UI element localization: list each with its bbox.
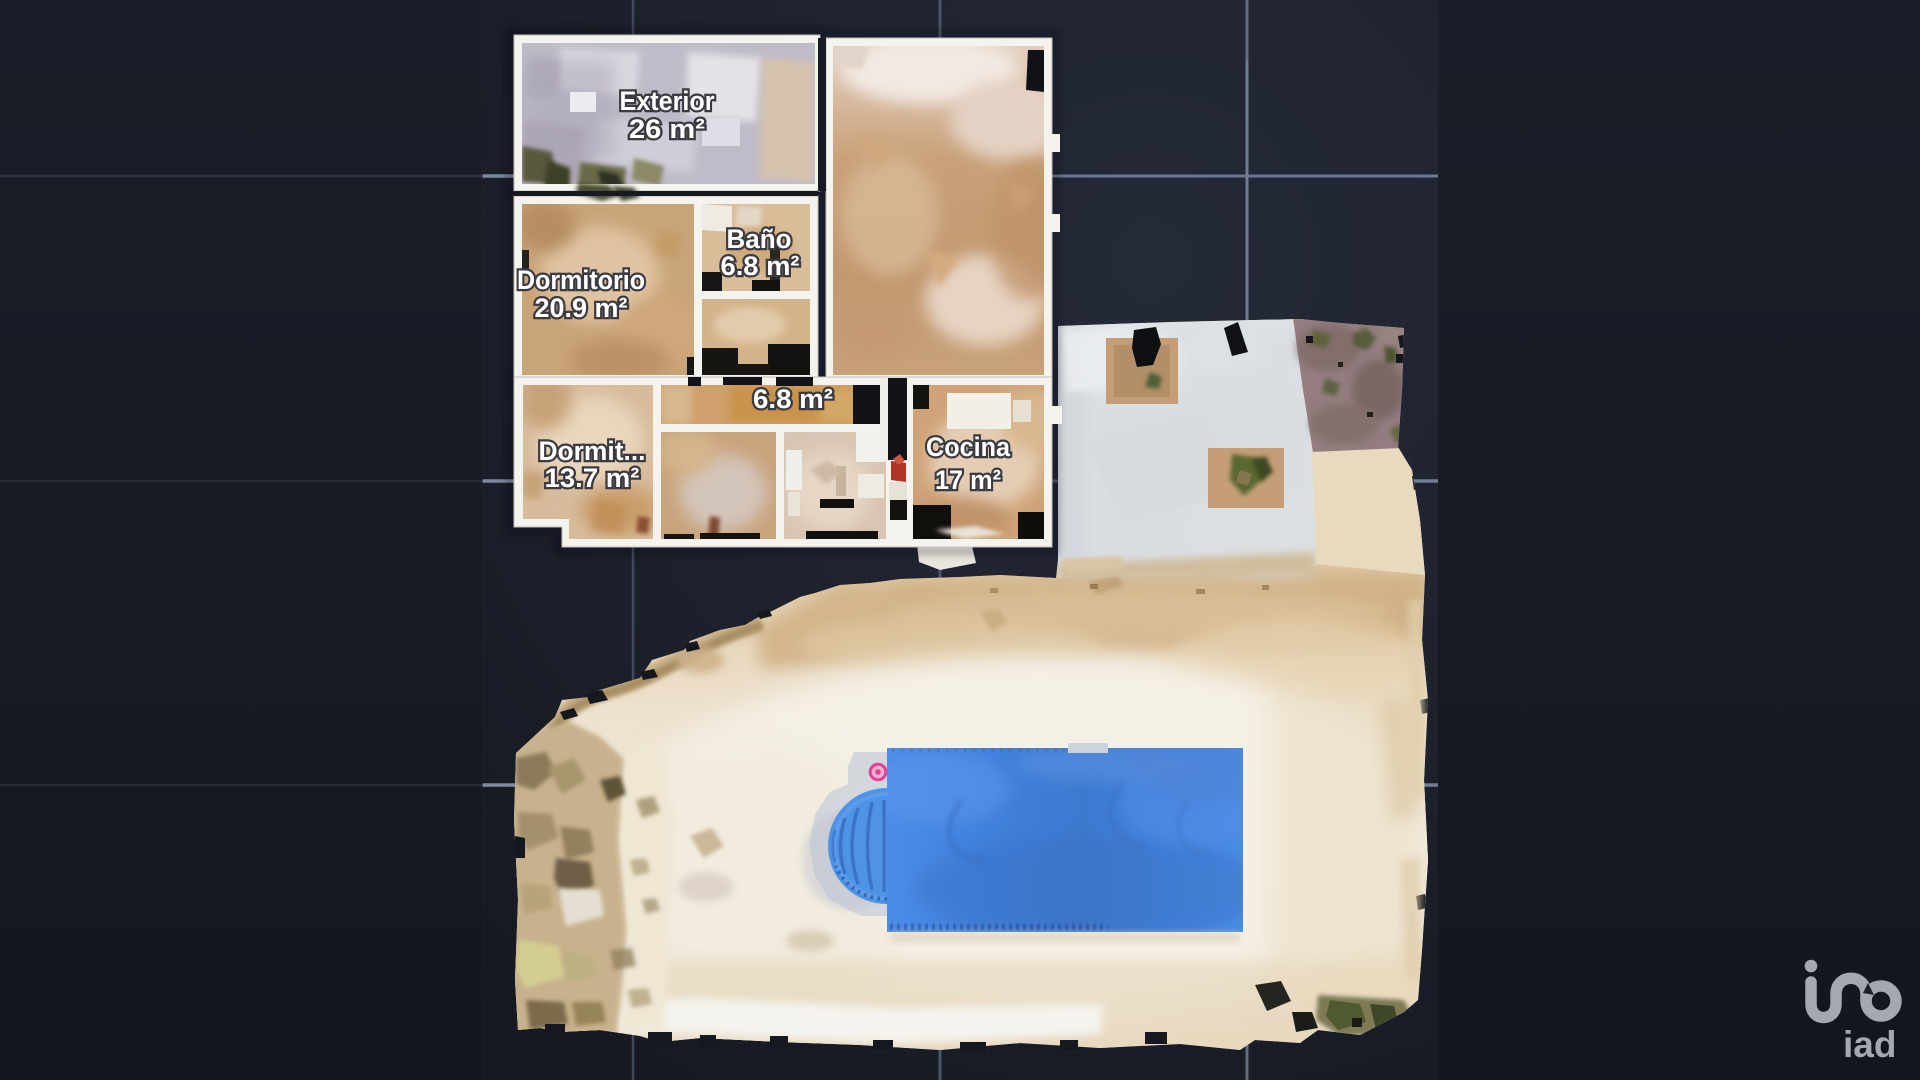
svg-text:20.9 m²: 20.9 m² bbox=[535, 293, 628, 323]
svg-text:Cocina: Cocina bbox=[926, 432, 1011, 462]
svg-text:6.8 m²: 6.8 m² bbox=[721, 251, 800, 281]
svg-text:Dormitorio: Dormitorio bbox=[517, 265, 645, 295]
svg-text:6.8 m²: 6.8 m² bbox=[753, 384, 833, 414]
svg-text:13.7 m²: 13.7 m² bbox=[545, 463, 640, 493]
svg-text:17 m²: 17 m² bbox=[935, 465, 1001, 495]
svg-text:iad: iad bbox=[1843, 1024, 1896, 1065]
svg-text:Exterior: Exterior bbox=[620, 86, 715, 116]
svg-text:Dormit...: Dormit... bbox=[539, 436, 646, 466]
svg-text:Baño: Baño bbox=[727, 224, 792, 254]
svg-text:26 m²: 26 m² bbox=[629, 114, 705, 144]
